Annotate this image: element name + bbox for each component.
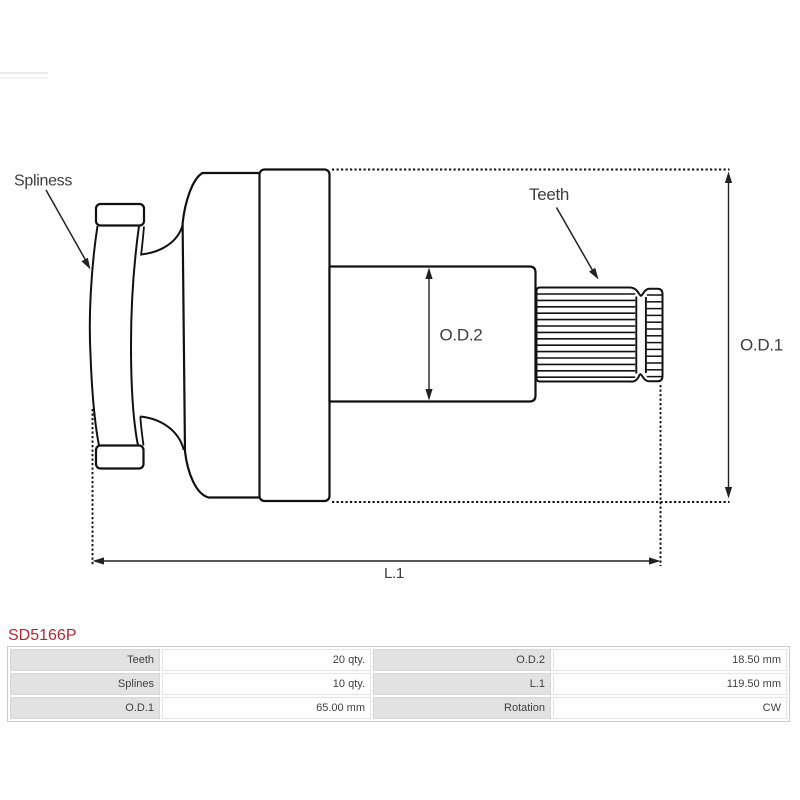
svg-text:Spliness: Spliness bbox=[14, 173, 72, 190]
svg-text:Teeth: Teeth bbox=[529, 185, 569, 204]
svg-text:O.D.1: O.D.1 bbox=[740, 336, 783, 355]
svg-text:O.D.2: O.D.2 bbox=[440, 326, 483, 345]
svg-text:L.1: L.1 bbox=[384, 565, 404, 582]
